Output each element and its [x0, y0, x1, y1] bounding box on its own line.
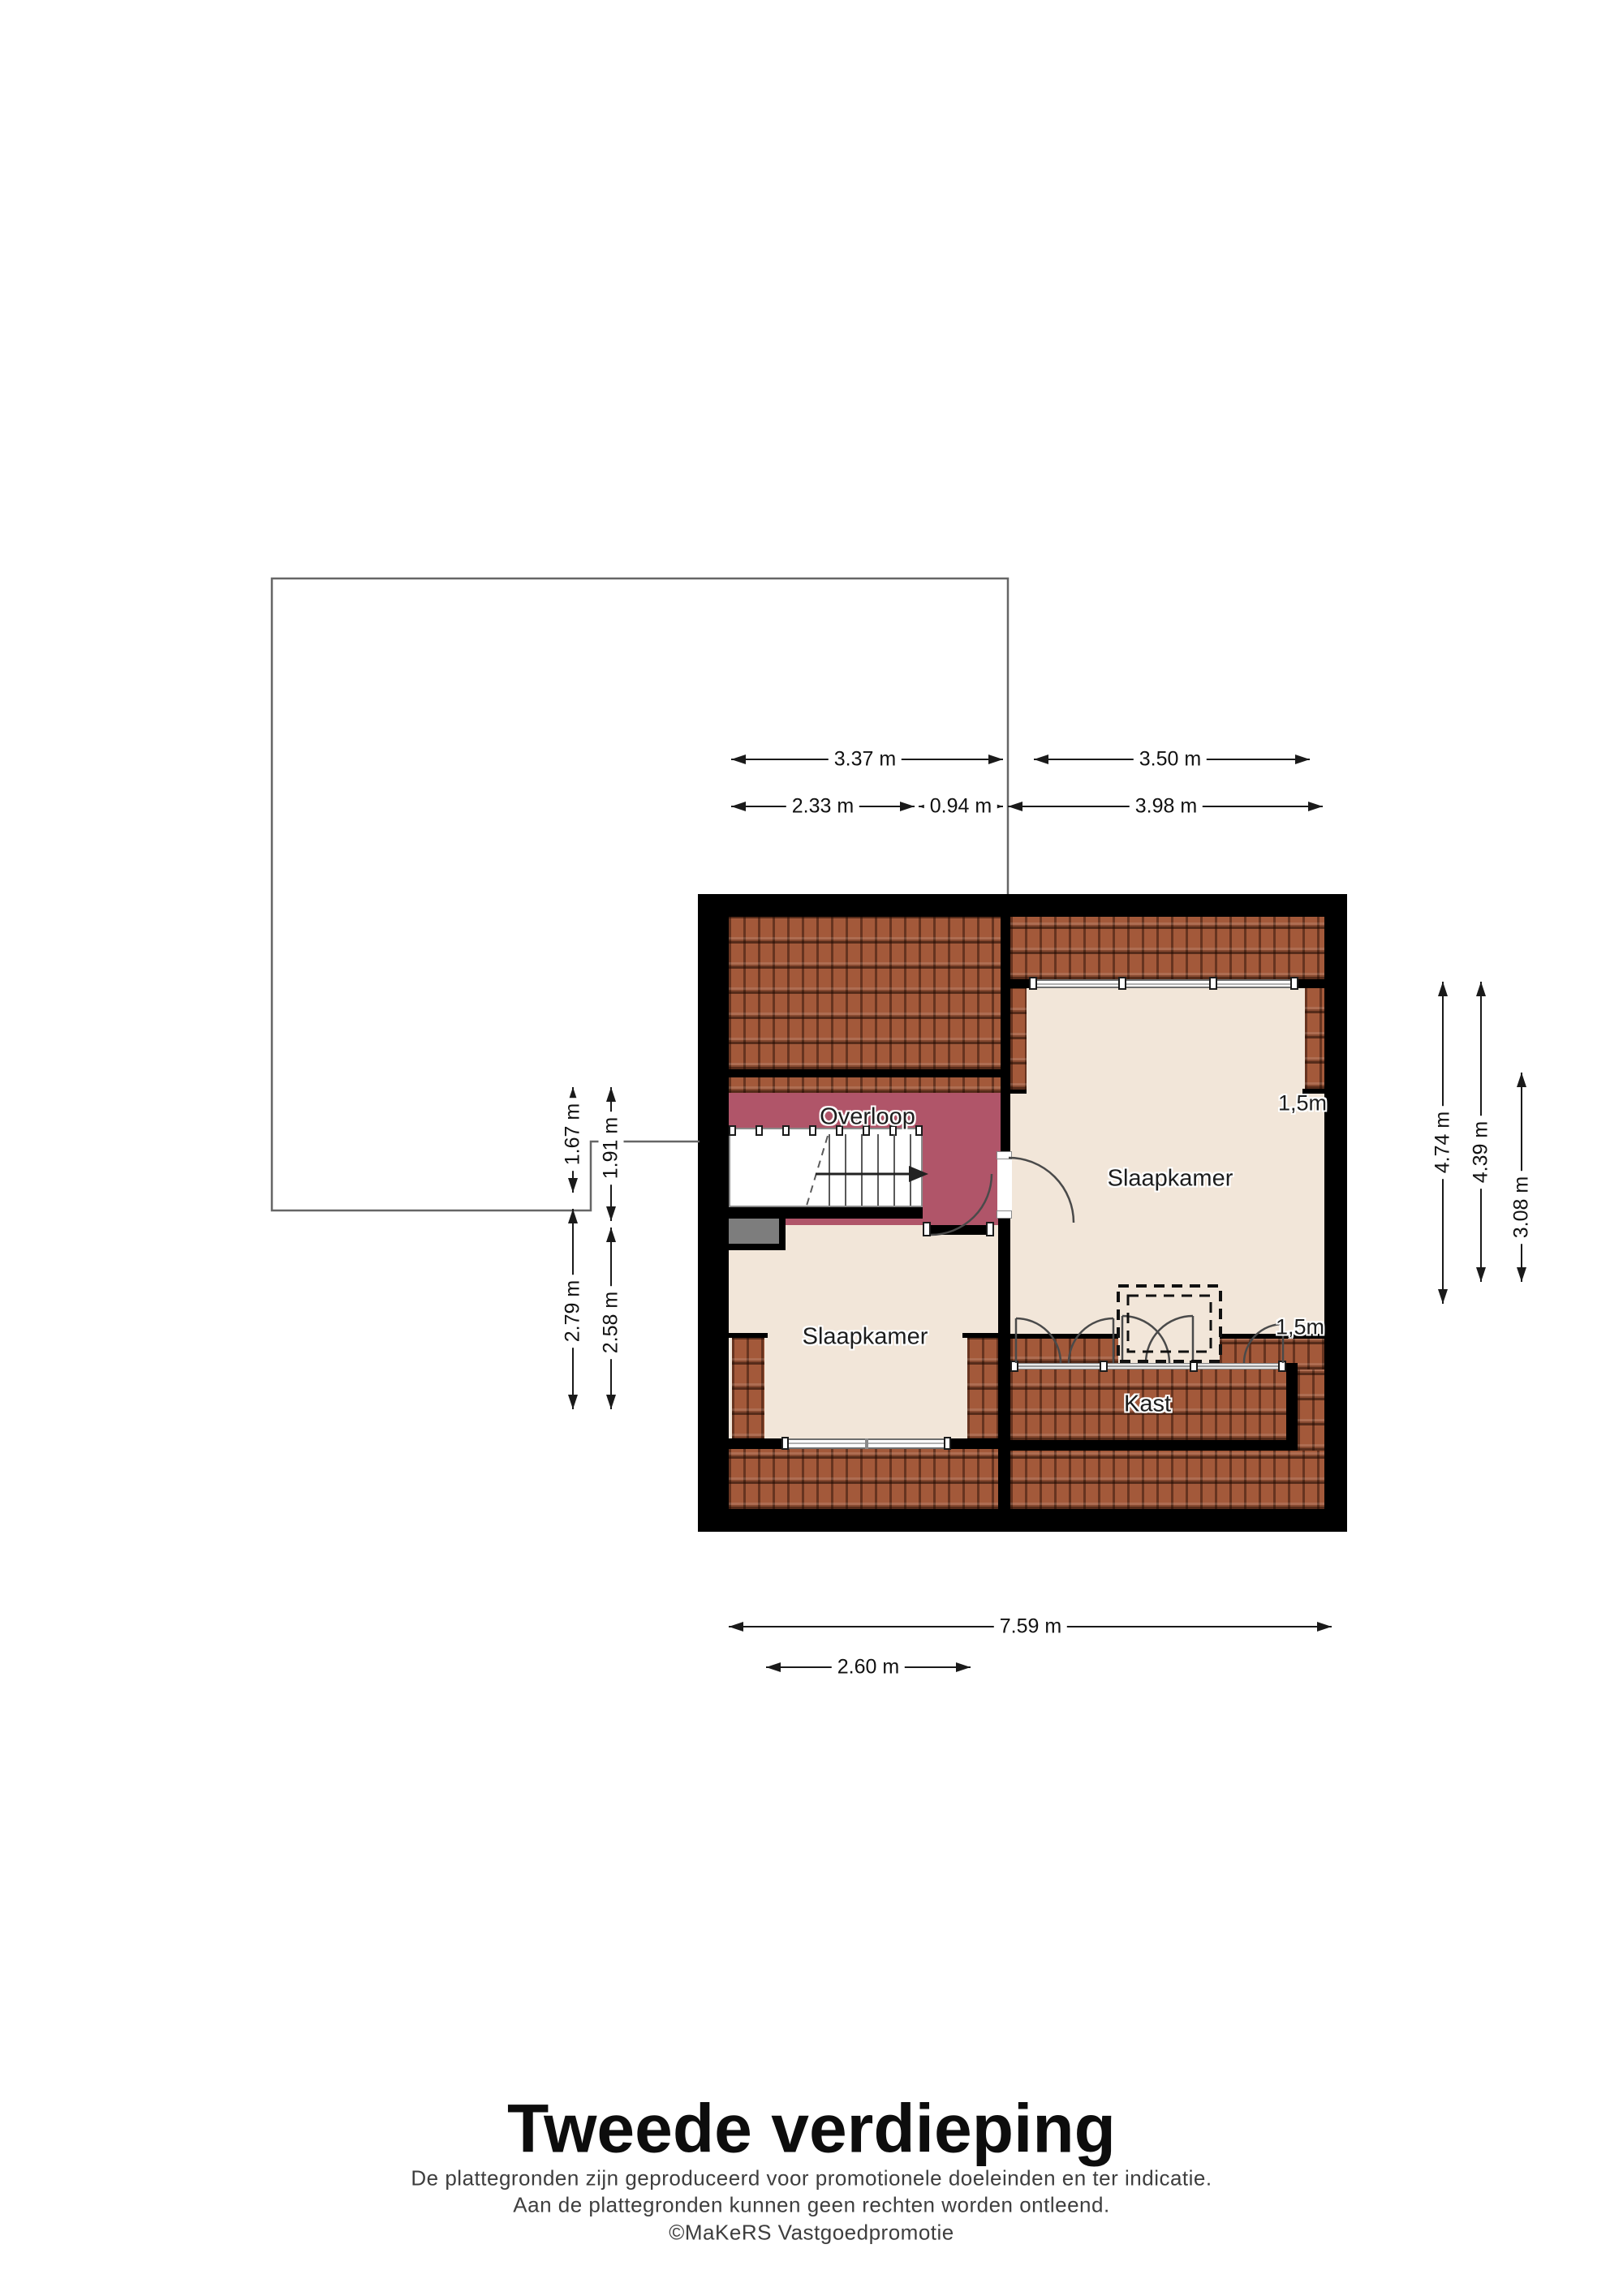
wall-outer-right — [1324, 894, 1347, 1532]
dim-label-258: 2.58 m — [599, 1286, 624, 1359]
window-post — [1209, 977, 1217, 990]
knee-wall-left-strip — [729, 1333, 768, 1338]
room-label-overloop: Overloop — [820, 1104, 915, 1131]
window-post — [1290, 977, 1298, 990]
dim-label-279: 2.79 m — [561, 1275, 586, 1348]
window-post — [1029, 977, 1037, 990]
roof-hatch-bottom-right — [1010, 1451, 1324, 1509]
knee-wall-kast-left — [1010, 1334, 1118, 1339]
dim-label-233: 2.33 m — [786, 794, 859, 819]
track-post — [1278, 1361, 1286, 1372]
dim-label-337: 3.37 m — [829, 747, 902, 772]
balustrade-post — [782, 1125, 790, 1136]
room-label-slaapkamer-left: Slaapkamer — [803, 1324, 928, 1351]
dim-label-191: 1.91 m — [599, 1111, 624, 1185]
window-divider — [865, 1438, 868, 1449]
track-post — [1100, 1361, 1108, 1372]
dim-label-398: 3.98 m — [1130, 794, 1203, 819]
headroom-label-right: 1,5m — [1278, 1091, 1327, 1116]
dim-label-094: 0.94 m — [924, 794, 997, 819]
roof-strip-left-bedroom-left — [732, 1338, 764, 1440]
wall-overloop-bottom — [931, 1225, 986, 1235]
balustrade-post — [756, 1125, 763, 1136]
dim-label-260: 2.60 m — [832, 1655, 905, 1680]
page-title: Tweede verdieping — [507, 2090, 1116, 2169]
room-label-kast: Kast — [1124, 1391, 1171, 1418]
disclaimer-line-2: Aan de plattegronden kunnen geen rechten… — [513, 2193, 1109, 2218]
floorplan-page: Overloop Slaapkamer Slaapkamer Kast 1,5m… — [0, 0, 1623, 2296]
wall-window-chunk-right — [1298, 979, 1324, 988]
roof-strip-right-bedroom-right — [1305, 987, 1324, 1089]
window-right-bedroom-top — [1029, 979, 1298, 988]
door-post — [986, 1222, 994, 1236]
balustrade-post — [915, 1125, 923, 1136]
wall-window-chunk-left — [1010, 979, 1029, 988]
roof-hatch-top-left-upper — [729, 917, 1001, 1069]
door-opening-right-bedroom — [997, 1158, 1012, 1211]
dim-label-350: 3.50 m — [1134, 747, 1207, 772]
wall-roof-band-left — [729, 1069, 1001, 1077]
wall-outer-left — [698, 894, 729, 1532]
window-post — [1118, 977, 1126, 990]
staircase — [729, 1128, 923, 1207]
wall-outer-bottom — [698, 1509, 1347, 1532]
dim-label-759: 7.59 m — [994, 1615, 1067, 1640]
headroom-label-kast: 1,5m — [1276, 1315, 1324, 1340]
wall-kast-bottom — [1010, 1440, 1298, 1451]
knee-line-mini-strip-left — [1010, 1090, 1027, 1094]
door-post — [923, 1222, 931, 1236]
track-post — [1190, 1361, 1198, 1372]
window-post — [781, 1437, 789, 1450]
roof-hatch-kast-top-left — [1010, 1339, 1118, 1363]
dim-label-474: 4.74 m — [1431, 1106, 1456, 1179]
track-post — [1010, 1361, 1018, 1372]
wall-divider-lower — [998, 1217, 1010, 1509]
window-post — [944, 1437, 951, 1450]
roof-hatch-top-left-lower — [729, 1077, 1001, 1093]
balustrade-post — [729, 1125, 736, 1136]
roof-hatch-top-right — [1010, 917, 1324, 979]
chimney-shaft — [729, 1219, 779, 1244]
closet-door-track — [1010, 1363, 1286, 1369]
wall-outer-top — [698, 894, 1347, 917]
dim-label-439: 4.39 m — [1469, 1116, 1494, 1189]
wall-under-stairs — [729, 1207, 923, 1219]
wall-left-bedroom-bottom-a — [729, 1438, 781, 1449]
disclaimer-line-1: De plattegronden zijn geproduceerd voor … — [411, 2166, 1212, 2191]
balustrade-post — [809, 1125, 816, 1136]
wall-chimney-bottom — [729, 1244, 786, 1250]
door-jamb — [997, 1151, 1012, 1159]
room-label-slaapkamer-right: Slaapkamer — [1108, 1166, 1233, 1193]
wall-divider-upper — [1001, 917, 1010, 1152]
wall-kast-right — [1286, 1363, 1298, 1451]
roof-hatch-right-of-kast — [1298, 1369, 1324, 1451]
door-jamb — [997, 1210, 1012, 1219]
dim-label-167: 1.67 m — [561, 1098, 586, 1171]
disclaimer-line-3: ©MaKeRS Vastgoedpromotie — [669, 2221, 954, 2246]
knee-wall-right-strip — [962, 1333, 1001, 1338]
roof-strip-left-bedroom-right — [967, 1338, 1001, 1440]
wall-left-bedroom-bottom-b — [951, 1438, 1001, 1449]
roof-strip-right-bedroom-left — [1010, 987, 1027, 1090]
dim-label-308: 3.08 m — [1509, 1171, 1535, 1244]
roof-hatch-bottom-left — [729, 1449, 1001, 1509]
